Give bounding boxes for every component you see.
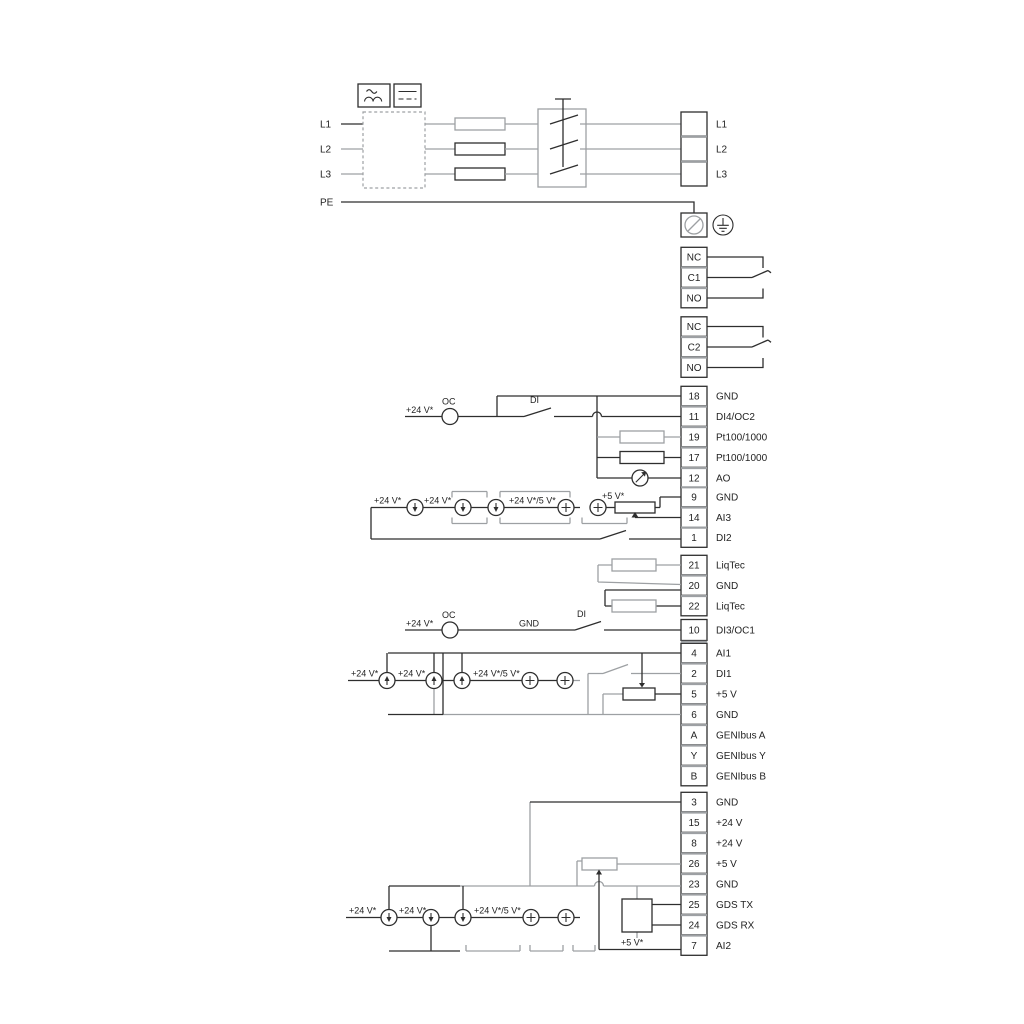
terminal-box: [681, 137, 707, 161]
strip-e-circuit: +24 V* +24 V* +24 V*/5 V*: [348, 653, 681, 715]
pe-ground: [681, 213, 733, 237]
source-plus-icon: [590, 500, 606, 516]
terminal-label: Pt100/1000: [716, 433, 768, 444]
terminal-label: GND: [716, 710, 738, 721]
di-annotation: DI: [530, 395, 539, 405]
terminal-number: 12: [688, 474, 700, 485]
liqtec-resistor-icon: [612, 559, 656, 571]
terminal-strip-f: 3 15 8 26 23 25 24 7 GND +24 V +24 V +5 …: [681, 792, 755, 955]
mains-output-label: L3: [716, 170, 728, 181]
main-switch: [538, 99, 681, 187]
supply-annotation: +24 V*: [351, 669, 379, 679]
terminal-number: 1: [691, 533, 697, 544]
terminal-label: AI2: [716, 941, 731, 952]
terminal-strip-ab: 18 11 19 17 12 9 14 1 GND DI4/OC2 Pt100/…: [681, 386, 768, 547]
terminal-label: DI2: [716, 533, 732, 544]
terminal-box: [681, 162, 707, 186]
source-plus-icon: [557, 673, 573, 689]
terminal-number: 15: [688, 818, 700, 829]
oc-circle-icon: [442, 622, 458, 638]
terminal-number: 18: [688, 392, 700, 403]
source-arrow-down-icon: [407, 500, 423, 516]
source-arrow-up-icon: [454, 673, 470, 689]
terminal-label: DI4/OC2: [716, 412, 755, 423]
terminal-strip-c: 21 20 22 LiqTec GND LiqTec: [598, 555, 745, 616]
strip-e-wires: [348, 653, 681, 715]
terminal-label: GND: [716, 581, 738, 592]
terminal-label: LiqTec: [716, 602, 745, 613]
gds-sensor-box: [622, 899, 652, 932]
mains-input-label: PE: [320, 198, 334, 209]
supply-annotation: +24 V*: [424, 496, 452, 506]
terminal-label: LiqTec: [716, 561, 745, 572]
relay-terminal-label: NC: [687, 322, 701, 333]
terminal-number: 4: [691, 649, 697, 660]
terminal-label: GENIbus Y: [716, 751, 766, 762]
terminal-number: 23: [688, 880, 700, 891]
terminal-number: 2: [691, 669, 697, 680]
mains-input: L1 L2 L3 PE: [320, 120, 694, 214]
fuse-icon: [455, 168, 505, 180]
fuses: [455, 118, 550, 180]
relay-terminal-label: NC: [687, 253, 701, 264]
terminal-label: DI3/OC1: [716, 626, 755, 637]
potentiometer-icon: [615, 502, 655, 513]
terminal-label: GDS RX: [716, 921, 755, 932]
wiring-diagram-page: L1 L2 L3 PE L1 L2 L3: [0, 0, 1024, 1024]
supply-annotation: +24 V*/5 V*: [473, 669, 520, 679]
relay-terminal-label: C2: [688, 343, 701, 354]
terminal-strip-de: 10 4 2 5 6 A Y B DI3/OC1 AI1 DI1 +5 V GN…: [681, 620, 766, 786]
relay-terminal-label: NO: [687, 294, 702, 305]
terminal-number: 7: [691, 941, 697, 952]
pt100-resistor-icon: [620, 452, 664, 464]
terminal-number: A: [691, 731, 698, 742]
supply-annotation: +5 V*: [621, 938, 644, 948]
terminal-label: +5 V: [716, 859, 737, 870]
terminal-number: 25: [688, 900, 700, 911]
potentiometer-wiper-arrow: [639, 683, 645, 688]
potentiometer-icon: [582, 858, 617, 870]
terminal-label: GND: [716, 493, 738, 504]
terminal-label: AO: [716, 474, 731, 485]
potentiometer-icon: [623, 688, 655, 700]
liqtec-resistor-icon: [612, 600, 656, 612]
earth-ground-glyph: [717, 218, 729, 231]
source-arrow-down-icon: [455, 910, 471, 926]
terminal-label: +24 V: [716, 839, 743, 850]
terminal-label: AI1: [716, 649, 731, 660]
strip-d-circuit: +24 V* OC GND DI: [405, 609, 681, 638]
mains-input-label: L3: [320, 170, 332, 181]
terminal-number: B: [691, 772, 698, 783]
source-arrow-down-icon: [488, 500, 504, 516]
supply-annotation: +24 V*/5 V*: [474, 906, 521, 916]
terminal-label: AI3: [716, 513, 731, 524]
source-plus-icon: [522, 673, 538, 689]
pt100-resistor-icon: [620, 431, 664, 443]
terminal-number: 10: [688, 626, 700, 637]
filter-box: [363, 112, 425, 188]
strip-a-circuit: +24 V* OC DI: [405, 395, 681, 486]
oc-annotation: OC: [442, 610, 456, 620]
terminal-box: [681, 112, 707, 136]
relay-1: NC C1 NO: [681, 247, 771, 307]
supply-annotation: +24 V*: [398, 669, 426, 679]
fuse-icon: [455, 118, 505, 130]
filter-output-wires: [425, 124, 455, 174]
strip-f-circuit: +24 V* +24 V* +24 V*/5 V* +5 V*: [346, 802, 681, 951]
terminal-number: 17: [688, 453, 700, 464]
source-arrow-up-icon: [426, 673, 442, 689]
relay1-contact: [707, 257, 771, 298]
terminal-number: 3: [691, 798, 697, 809]
terminal-label: Pt100/1000: [716, 453, 768, 464]
terminal-label: GND: [716, 880, 738, 891]
mains-output-label: L2: [716, 145, 728, 156]
gnd-annotation: GND: [519, 619, 540, 629]
terminal-label: GENIbus B: [716, 772, 766, 783]
strip-b-circuit: +24 V* +24 V* +24 V*/5 V* +5 V*: [371, 491, 681, 539]
oc-circle-icon: [442, 409, 458, 425]
wiring-diagram: L1 L2 L3 PE L1 L2 L3: [0, 0, 1024, 1024]
source-arrow-down-icon: [455, 500, 471, 516]
terminal-number: 20: [688, 581, 700, 592]
emc-filter: [358, 84, 455, 188]
terminal-label: +24 V: [716, 818, 743, 829]
relay-terminal-label: C1: [688, 273, 701, 284]
relay-2: NC C2 NO: [681, 317, 771, 378]
supply-annotation: +5 V*: [602, 491, 625, 501]
terminal-number: 6: [691, 710, 697, 721]
terminal-number: 14: [688, 513, 700, 524]
terminal-number: 21: [688, 561, 700, 572]
oc-annotation: OC: [442, 397, 456, 407]
mains-input-label: L1: [320, 120, 332, 131]
supply-annotation: +24 V*: [374, 496, 402, 506]
terminal-number: 22: [688, 602, 700, 613]
mains-output-label: L1: [716, 120, 728, 131]
ac-symbol-box: [358, 84, 390, 107]
terminal-label: GND: [716, 392, 738, 403]
terminal-number: 26: [688, 859, 700, 870]
terminal-label: +5 V: [716, 690, 737, 701]
relay2-contact: [707, 327, 771, 368]
terminal-label: GENIbus A: [716, 731, 766, 742]
ao-meter-icon: [632, 470, 648, 486]
source-arrow-down-icon: [381, 910, 397, 926]
supply-annotation: +24 V*/5 V*: [509, 496, 556, 506]
terminal-number: 24: [688, 921, 700, 932]
terminal-label: GDS TX: [716, 900, 753, 911]
source-plus-icon: [523, 910, 539, 926]
supply-annotation: +24 V*: [406, 405, 434, 415]
relay-terminal-label: NO: [687, 363, 702, 374]
terminal-number: 11: [689, 412, 700, 423]
supply-annotation: +24 V*: [349, 906, 377, 916]
dc-symbol-box: [394, 84, 421, 107]
terminal-number: 5: [691, 690, 697, 701]
source-plus-icon: [558, 500, 574, 516]
di-annotation: DI: [577, 609, 586, 619]
fuse-icon: [455, 143, 505, 155]
switch-output-wires: [580, 124, 681, 174]
pe-wire: [341, 202, 694, 213]
terminal-number: 8: [691, 839, 697, 850]
supply-annotation: +24 V*: [399, 906, 427, 916]
terminal-number: 19: [688, 433, 700, 444]
terminal-number: Y: [691, 751, 698, 762]
mains-wire-l2-l3: [341, 149, 363, 174]
source-arrow-up-icon: [379, 673, 395, 689]
mains-input-label: L2: [320, 145, 332, 156]
terminal-label: GND: [716, 798, 738, 809]
supply-annotation: +24 V*: [406, 619, 434, 629]
mains-output-terminals: L1 L2 L3: [681, 112, 728, 186]
terminal-label: DI1: [716, 669, 732, 680]
terminal-number: 9: [691, 493, 697, 504]
source-plus-icon: [558, 910, 574, 926]
